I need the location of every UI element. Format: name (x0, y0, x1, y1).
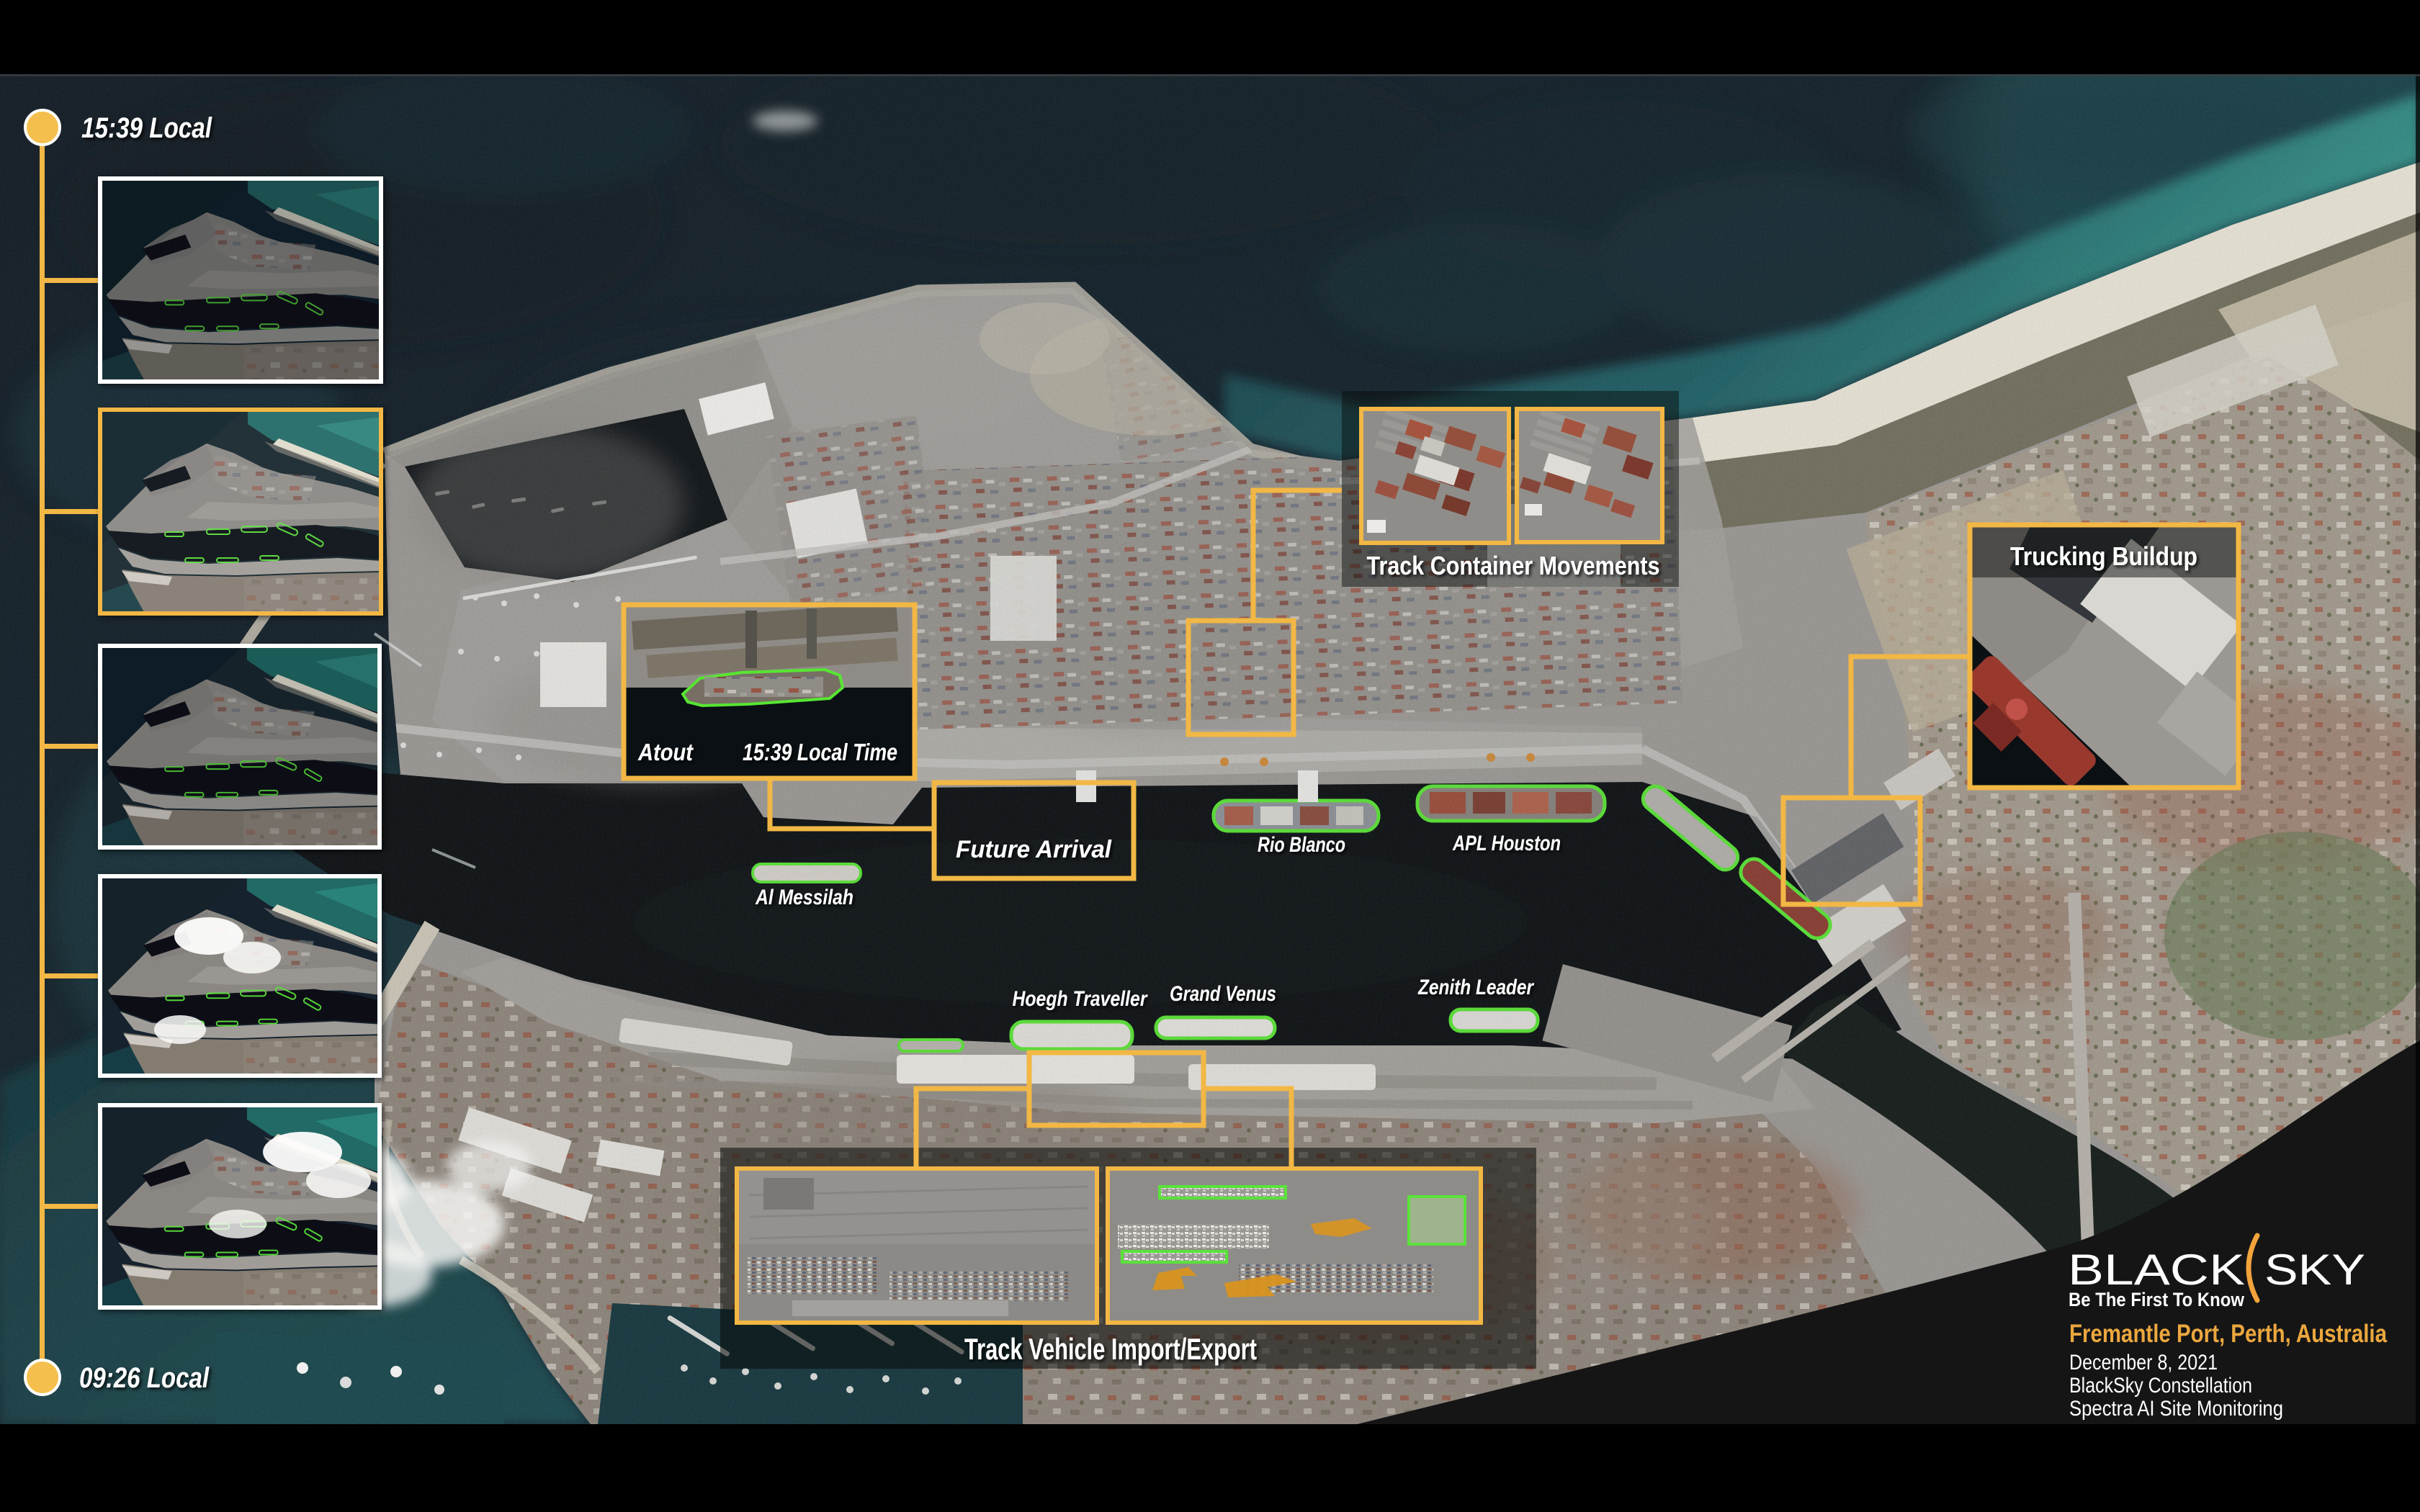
svg-text:Al Messilah: Al Messilah (755, 886, 853, 909)
svg-text:15:39 Local Time: 15:39 Local Time (743, 739, 897, 765)
svg-text:15:39 Local: 15:39 Local (81, 112, 212, 144)
svg-text:Zenith Leader: Zenith Leader (1417, 976, 1535, 999)
svg-text:Hoegh Traveller: Hoegh Traveller (1013, 987, 1149, 1011)
svg-text:SKY: SKY (2264, 1246, 2365, 1294)
svg-text:Track Vehicle Import/Export: Track Vehicle Import/Export (964, 1332, 1257, 1366)
svg-text:Be The First To Know: Be The First To Know (2069, 1289, 2245, 1310)
svg-text:APL Houston: APL Houston (1452, 832, 1561, 855)
svg-text:Atout: Atout (637, 739, 694, 765)
svg-text:Future Arrival: Future Arrival (956, 836, 1113, 863)
svg-text:09:26 Local: 09:26 Local (79, 1362, 210, 1394)
svg-text:Trucking Buildup: Trucking Buildup (2010, 541, 2197, 571)
svg-text:December 8, 2021: December 8, 2021 (2069, 1351, 2218, 1374)
svg-text:BlackSky Constellation: BlackSky Constellation (2069, 1374, 2252, 1398)
svg-text:Rio Blanco: Rio Blanco (1258, 833, 1345, 857)
svg-text:BLACK: BLACK (2068, 1246, 2245, 1294)
svg-text:Fremantle Port, Perth, Austral: Fremantle Port, Perth, Australia (2069, 1320, 2387, 1348)
svg-text:Track Container Movements: Track Container Movements (1367, 551, 1660, 580)
svg-text:Spectra AI Site Monitoring: Spectra AI Site Monitoring (2069, 1397, 2283, 1421)
svg-text:Grand Venus: Grand Venus (1170, 982, 1276, 1006)
